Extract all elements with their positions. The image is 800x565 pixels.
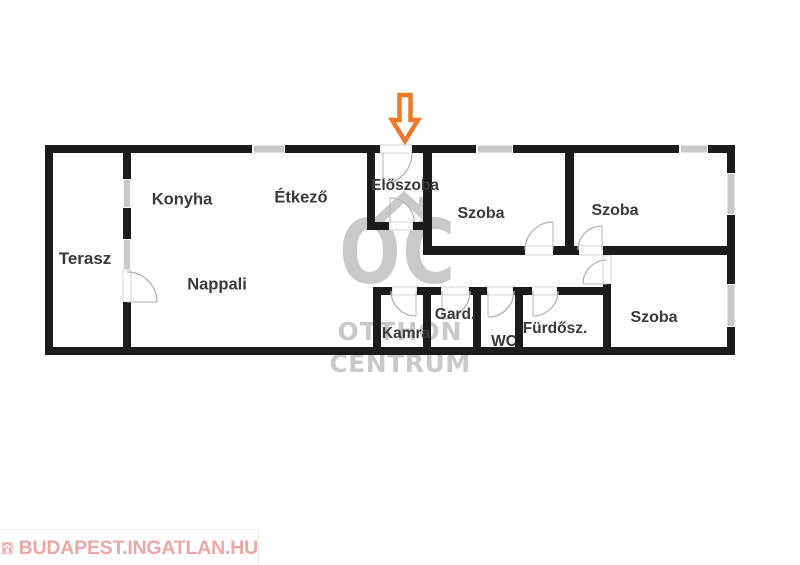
footer-logo: BUDAPEST.INGATLAN.HU xyxy=(0,529,259,565)
room-label-furdoszoba: Fürdősz. xyxy=(523,320,588,338)
entrance-arrow-icon xyxy=(0,0,800,565)
room-label-etkezo: Étkező xyxy=(274,189,327,208)
room-label-szoba-bottom-right: Szoba xyxy=(630,309,677,327)
room-label-nappali: Nappali xyxy=(187,276,247,295)
room-label-konyha: Konyha xyxy=(152,191,213,210)
floorplan-page: OC OTTHON CENTRUM xyxy=(0,0,800,565)
room-label-szoba-top-middle: Szoba xyxy=(457,205,504,223)
room-label-terasz: Terasz xyxy=(59,249,112,269)
room-label-wc: WC xyxy=(491,333,517,351)
room-label-eloszoba: Előszoba xyxy=(371,177,439,195)
room-label-szoba-top-right: Szoba xyxy=(591,202,638,220)
house-icon xyxy=(2,532,13,564)
room-label-gard: Gard. xyxy=(435,306,475,324)
footer-logo-text: BUDAPEST.INGATLAN.HU xyxy=(19,537,258,560)
room-label-kamra: Kamra xyxy=(382,325,430,343)
